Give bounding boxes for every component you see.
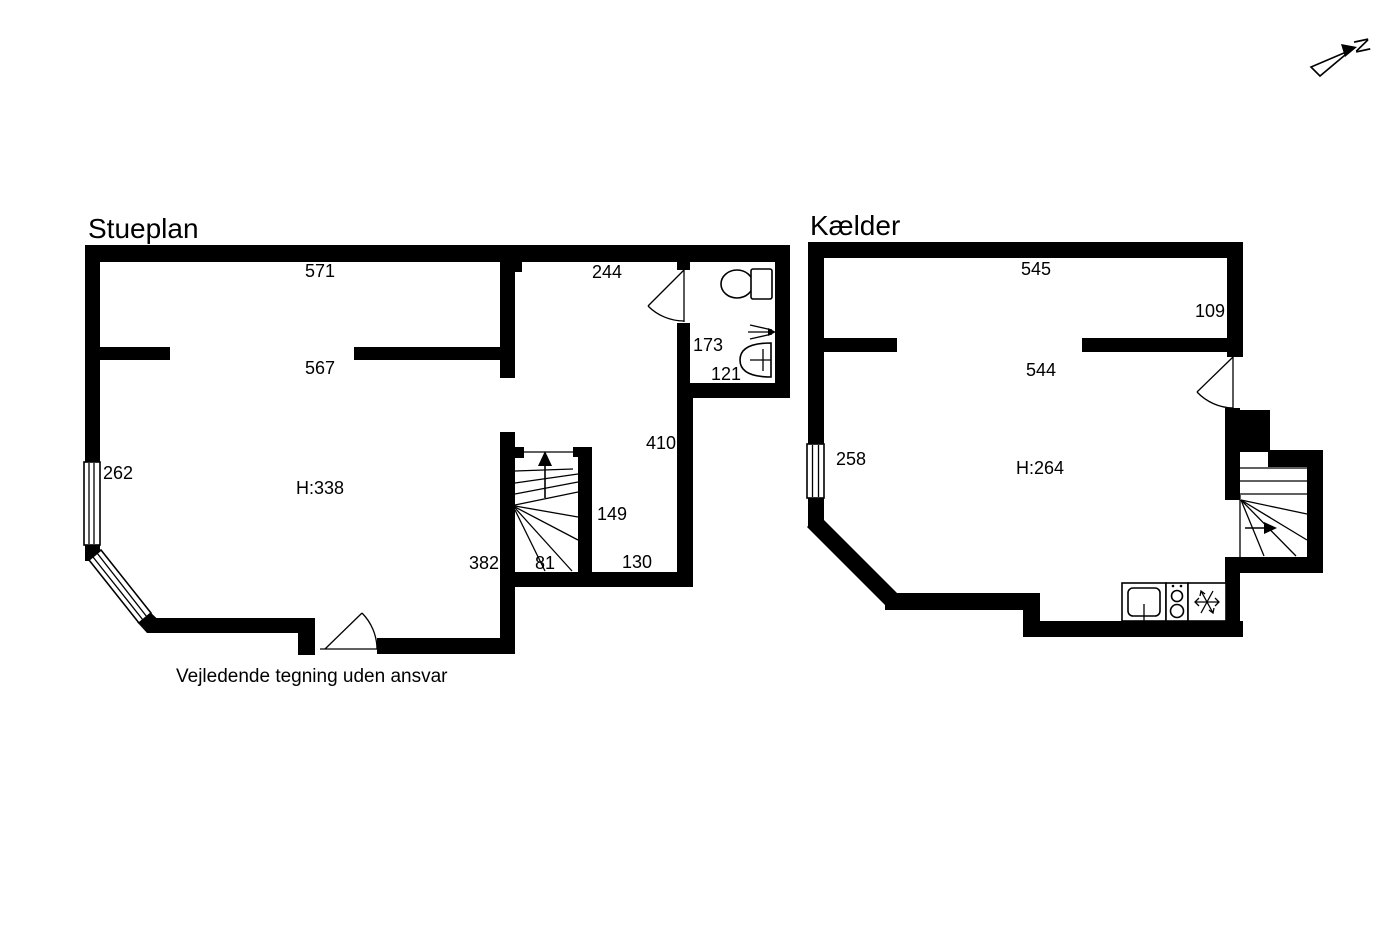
stueplan-plan: Stueplan <box>84 213 790 655</box>
ceiling-height-label: H:338 <box>296 478 344 498</box>
floorplan-drawing: Stueplan <box>0 0 1400 933</box>
entry-door <box>320 613 377 649</box>
wall-segment-block <box>1225 410 1270 452</box>
disclaimer: Vejledende tegning uden ansvar <box>176 666 448 687</box>
dim-label-room-width: 567 <box>305 358 335 378</box>
fridge-icon <box>1188 583 1226 621</box>
kaelder-labels: 545 109 544 258 H:264 <box>836 259 1225 478</box>
wall-segment <box>500 432 515 572</box>
wall-segment <box>885 593 1040 610</box>
wall-segment <box>578 447 592 572</box>
toilet-icon <box>721 269 772 299</box>
wall-segment <box>298 618 315 655</box>
dim-label-bath-width: 121 <box>711 364 741 384</box>
stueplan-windows <box>84 462 151 623</box>
dim-label-hall-bottom: 130 <box>622 552 652 572</box>
kaelder-plan: Kælder <box>807 210 1323 637</box>
wall-segment <box>677 385 693 587</box>
wall-segment <box>1225 557 1240 637</box>
dim-label-room-bottom: 382 <box>469 553 499 573</box>
bathroom-fixtures <box>721 269 776 377</box>
stove-icon <box>1166 583 1188 621</box>
dim-label-hall-length: 410 <box>646 433 676 453</box>
wall-segment <box>677 323 690 385</box>
wall-segment <box>677 383 790 398</box>
ceiling-height-label: H:264 <box>1016 458 1064 478</box>
wall-segment <box>1227 242 1243 357</box>
dim-label-window-left: 262 <box>103 463 133 483</box>
dim-label-top-width: 545 <box>1021 259 1051 279</box>
kaelder-walls <box>808 242 1323 637</box>
wall-segment <box>808 242 1243 258</box>
dim-label-right-side: 109 <box>1195 301 1225 321</box>
wall-segment <box>500 572 693 587</box>
dim-label-stair-width: 81 <box>535 553 555 573</box>
wall-segment <box>1307 450 1323 573</box>
dim-label-hall-width: 244 <box>592 262 622 282</box>
kitchen-sink-icon <box>1122 583 1166 621</box>
kitchen-fixtures <box>1122 583 1226 621</box>
wall-segment <box>808 242 824 445</box>
wall-segment <box>85 347 170 360</box>
wall-segment <box>515 262 522 272</box>
dim-label-stair-depth: 149 <box>597 504 627 524</box>
wall-segment <box>515 447 524 458</box>
wall-segment <box>85 245 790 262</box>
wall-segment <box>1082 338 1227 352</box>
wall-segment <box>775 245 790 398</box>
stair-up-arrow-icon <box>538 451 552 498</box>
kaelder-door <box>1197 357 1233 408</box>
stueplan-title: Stueplan <box>88 213 199 244</box>
bathroom-door <box>648 270 684 322</box>
kaelder-window-left <box>807 444 824 498</box>
wall-segment <box>377 638 515 654</box>
north-arrow-icon: N <box>1311 36 1374 76</box>
wall-segment <box>824 338 897 352</box>
dim-label-window-left: 258 <box>836 449 866 469</box>
window-left <box>84 462 100 545</box>
dim-label-room-width: 544 <box>1026 360 1056 380</box>
wall-segment <box>148 618 315 633</box>
staircase-kaelder <box>1240 468 1307 557</box>
north-label: N <box>1349 36 1375 56</box>
sink-icon <box>740 343 771 377</box>
dim-label-top-width: 571 <box>305 261 335 281</box>
wall-segment <box>354 347 515 360</box>
floorplan-canvas: Stueplan <box>0 0 1400 933</box>
wall-segment-diagonal <box>813 521 893 601</box>
stueplan-labels: 571 244 567 173 121 262 H:338 410 149 38… <box>103 261 741 573</box>
window-diagonal <box>89 550 151 623</box>
wall-segment <box>1023 621 1243 637</box>
shower-spray-icon <box>748 325 776 339</box>
wall-segment <box>677 262 690 270</box>
wall-segment <box>1227 557 1323 573</box>
dim-label-bath-depth: 173 <box>693 335 723 355</box>
kaelder-title: Kælder <box>810 210 900 241</box>
